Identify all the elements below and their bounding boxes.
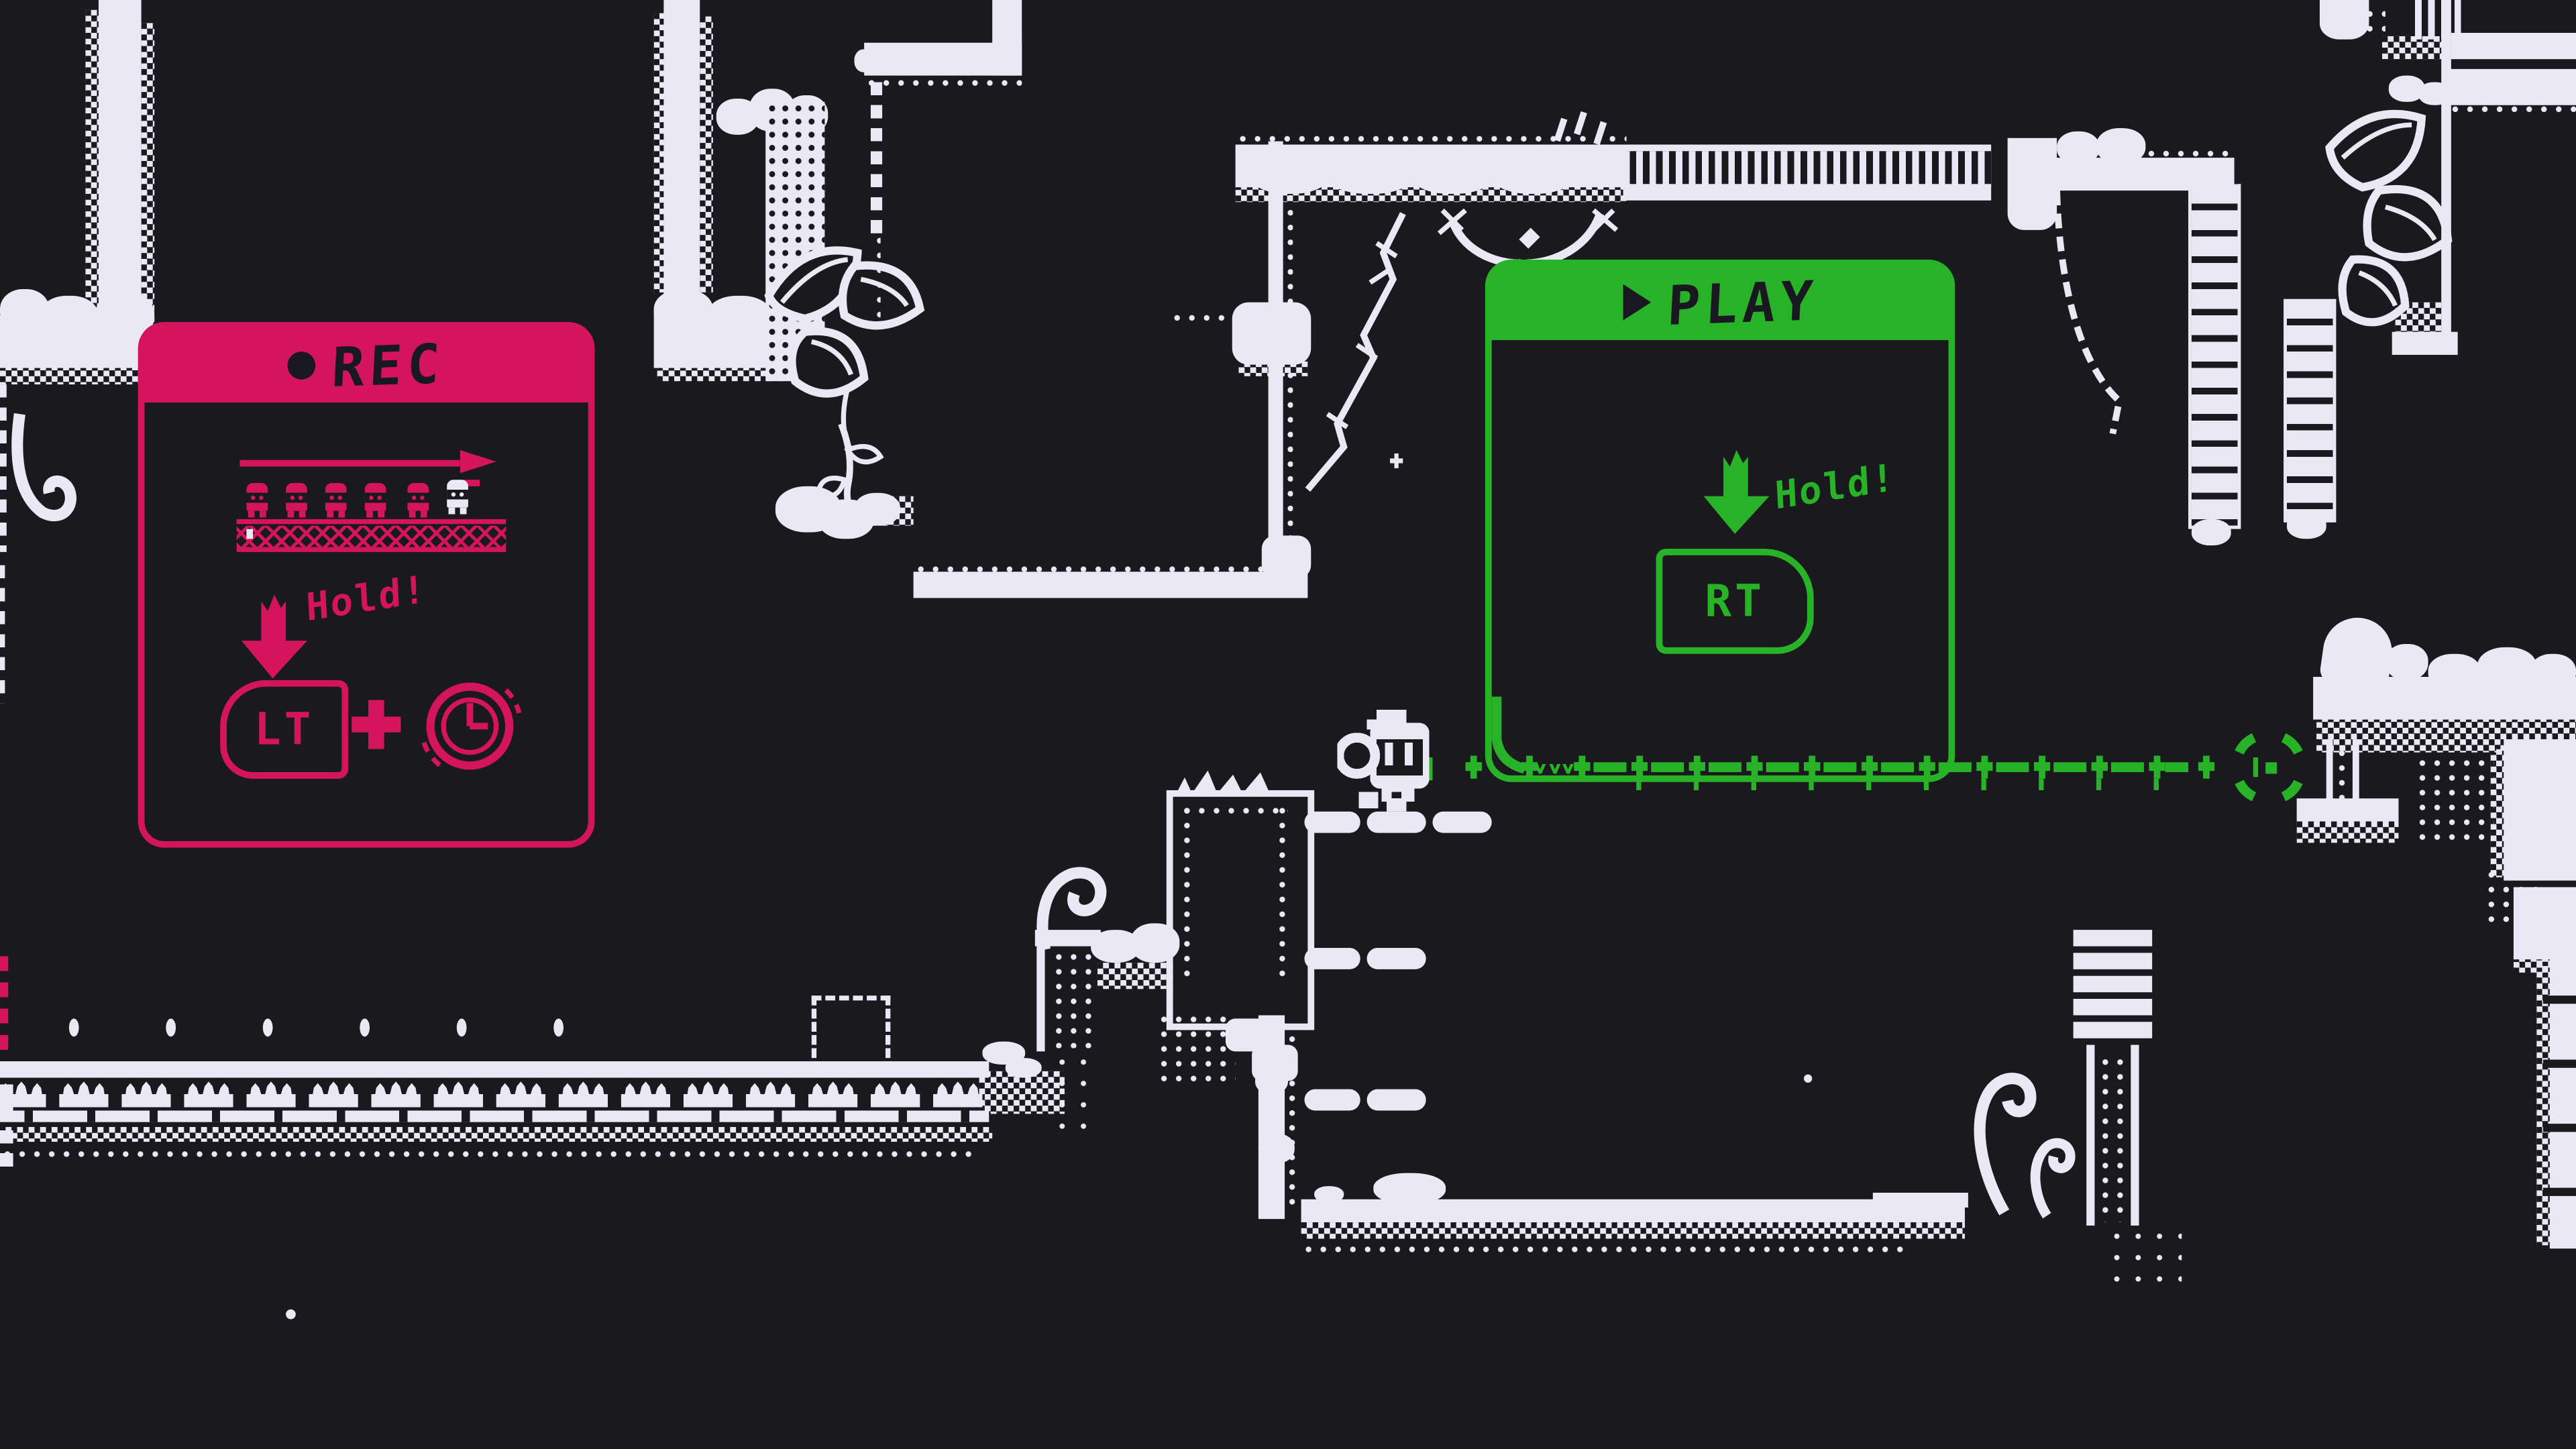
dashed-platform	[1304, 1089, 1360, 1111]
dashed-platform	[1367, 948, 1426, 969]
frame-creature-icon	[325, 483, 347, 511]
vine-chain	[2188, 184, 2241, 529]
terrain-floor	[1301, 1199, 1965, 1222]
terrain-dither	[2536, 943, 2553, 1246]
rec-hold-label: Hold!	[305, 569, 428, 631]
terrain-fringe	[2297, 821, 2399, 843]
wall-seam	[2543, 1188, 2576, 1196]
grate-bar	[2074, 1022, 2153, 1038]
grate-column-line	[2131, 1045, 2139, 1226]
platform-arch	[684, 1081, 733, 1107]
platform-arch	[621, 1081, 670, 1107]
terrain-rock	[2385, 644, 2428, 680]
terrain-floor-checker	[1301, 1222, 1965, 1238]
platform-arch	[808, 1081, 857, 1107]
rec-panel-header: REC	[143, 327, 590, 402]
terrain-comb-wall	[1623, 151, 1992, 187]
platform-arch	[434, 1081, 483, 1107]
path-node	[1919, 756, 1935, 779]
doorframe-dots	[1179, 804, 1288, 817]
wall-seam	[2543, 996, 2576, 1004]
terrain-top-bar	[2451, 33, 2576, 59]
frame-creature-icon	[286, 483, 307, 511]
terrain-corner-bar	[2392, 332, 2458, 355]
target-reticle-icon	[2231, 729, 2307, 805]
terrain-block	[2504, 739, 2576, 881]
terrain-drip	[1236, 184, 1627, 202]
path-dash	[2053, 762, 2086, 772]
rt-button-label: RT	[1705, 576, 1764, 627]
curl-decorations	[1932, 1058, 2083, 1219]
filmstrip-top-line	[237, 519, 506, 524]
rec-panel: REC Hold! LT	[138, 322, 595, 848]
terrain-edge-line	[0, 384, 7, 552]
dashed-platform	[1367, 812, 1426, 833]
dashed-platform	[1304, 948, 1360, 969]
terrain-dither	[2382, 36, 2451, 59]
vine-drape	[2047, 187, 2145, 443]
filmstrip-marker	[246, 529, 253, 539]
platform-notch-bar	[0, 1111, 989, 1122]
terrain-platform	[0, 1061, 989, 1077]
path-node	[2149, 756, 2165, 779]
terrain-rubble	[2106, 1226, 2182, 1288]
path-dash	[1939, 762, 1972, 772]
platform-dots	[0, 1146, 979, 1160]
path-dash	[1594, 762, 1627, 772]
terrain-hanging-dots	[872, 233, 880, 319]
terrain-drip	[0, 365, 151, 384]
path-node	[1862, 756, 1878, 779]
platform-arch	[559, 1081, 608, 1107]
terrain-dot-block	[2415, 756, 2494, 848]
terrain-ridge	[2313, 677, 2576, 720]
terrain-floor-dots	[1301, 1242, 1906, 1255]
terrain-top-wall-base	[1623, 184, 1992, 200]
path-node	[2034, 756, 2050, 779]
terrain-dither	[654, 13, 667, 292]
path-node	[1465, 756, 1481, 779]
path-dot	[457, 1018, 467, 1036]
frame-creature-icon	[246, 483, 268, 511]
path-node	[1746, 756, 1762, 779]
timeline-arrow-head-icon	[460, 443, 496, 480]
path-node	[1521, 756, 1538, 779]
path-stem	[2154, 779, 2159, 790]
plus-icon	[352, 700, 400, 749]
terrain-mid-floor	[914, 572, 1308, 598]
terrain-speck	[1804, 1075, 1812, 1083]
terrain-dither	[2491, 749, 2507, 877]
grate-dots	[2334, 746, 2351, 802]
terrain-dither	[871, 496, 914, 526]
path-dot	[263, 1018, 273, 1036]
terrain-column-dots	[1051, 1051, 1091, 1130]
path-stem	[2039, 779, 2043, 790]
terrain-dissolve	[1097, 963, 1173, 989]
path-stem	[1924, 779, 1929, 790]
terrain-top-wall-line	[1623, 145, 1992, 152]
doorframe-dots	[1179, 804, 1193, 984]
path-node	[2092, 756, 2108, 779]
terrain-dither	[85, 10, 100, 348]
rec-panel-title: REC	[331, 331, 447, 399]
platform-checker	[0, 1127, 992, 1142]
play-triangle-icon	[1623, 284, 1651, 321]
platform-arch	[746, 1081, 795, 1107]
terrain-edge-line	[0, 565, 5, 703]
grate-bar	[2074, 999, 2153, 1015]
grate-column-dots	[2098, 1055, 2127, 1222]
terrain-column-dots	[1051, 950, 1097, 1049]
frame-creature-highlight-icon	[447, 480, 468, 508]
path-dash	[1996, 762, 2029, 772]
terrain-speck	[286, 1309, 296, 1320]
frame-creature-icon	[407, 483, 429, 511]
terrain-fringe	[2448, 102, 2576, 115]
terrain-ridge	[2448, 69, 2576, 105]
dashed-platform	[1367, 1089, 1426, 1111]
play-hold-label: Hold!	[1774, 457, 1896, 519]
recorded-path	[1413, 746, 2254, 795]
filmstrip-bottom-line	[237, 547, 506, 552]
dashed-platform	[1433, 812, 1492, 833]
path-dot	[166, 1018, 176, 1036]
path-dash	[1651, 762, 1684, 772]
wall-seam	[2543, 1060, 2576, 1068]
lt-button-label: LT	[254, 704, 314, 755]
path-dot	[69, 1018, 79, 1036]
vine-chain-tip	[2287, 513, 2326, 539]
terrain-fringe	[864, 76, 1022, 89]
path-node	[1976, 756, 1992, 779]
vine-chain-tip	[2192, 519, 2231, 545]
wall-seam	[2543, 1124, 2576, 1132]
game-viewport[interactable]: REC Hold! LT PL	[0, 0, 2576, 1449]
path-dash	[2111, 762, 2144, 772]
filmstrip-lattice	[237, 526, 506, 547]
grate-column-line	[2086, 1045, 2094, 1226]
path-stem	[2096, 779, 2101, 790]
path-node	[1804, 756, 1820, 779]
terrain-column	[663, 0, 700, 299]
record-dot-icon	[288, 351, 316, 379]
doorframe-dots	[1275, 804, 1288, 984]
vine-branch	[1285, 204, 1423, 503]
terrain-rock	[1255, 1068, 1288, 1094]
play-panel-header: PLAY	[1490, 264, 1950, 340]
terrain-dither	[700, 16, 713, 292]
terrain-column-line	[1036, 947, 1044, 1052]
terrain-rock	[2320, 0, 2369, 40]
timeline-arrow	[240, 460, 460, 467]
terrain-ledge	[2297, 798, 2399, 821]
down-arrow-icon	[1702, 443, 1771, 539]
path-node	[1574, 756, 1590, 779]
path-tick	[1549, 764, 1560, 774]
platform-arch	[184, 1081, 233, 1107]
platform-arch	[246, 1081, 295, 1107]
path-dash	[1766, 762, 1799, 772]
play-panel-title: PLAY	[1666, 268, 1819, 337]
terrain-hanging-line	[871, 82, 882, 233]
platform-arch	[371, 1081, 420, 1107]
platform-arch	[59, 1081, 108, 1107]
path-stem	[1752, 779, 1756, 790]
dashed-platform	[1304, 812, 1360, 833]
terrain-rock	[1130, 923, 1179, 963]
path-node	[2198, 756, 2214, 779]
clock-icon	[414, 667, 529, 782]
terrain-edge-bits	[0, 1084, 13, 1173]
grate-line	[2326, 739, 2333, 805]
red-path-dashes	[0, 956, 8, 1074]
curl-decoration	[7, 411, 79, 529]
path-stem	[1694, 779, 1699, 790]
platform-arch	[496, 1081, 545, 1107]
path-node	[1689, 756, 1705, 779]
play-panel: PLAY Hold! RT	[1485, 260, 1955, 782]
platform-arch	[121, 1081, 170, 1107]
path-dot	[553, 1018, 563, 1036]
rt-button-icon: RT	[1656, 549, 1814, 654]
terrain-rock	[1258, 1134, 1295, 1163]
terrain-dotted-ledge	[1170, 311, 1236, 322]
path-tick	[1562, 764, 1574, 774]
lt-button-icon: LT	[220, 680, 348, 779]
path-dash	[1823, 762, 1856, 772]
path-dash	[1709, 762, 1741, 772]
terrain-dither	[2363, 7, 2385, 36]
path-dash	[1881, 762, 1914, 772]
terrain-column-dots	[1285, 1032, 1301, 1206]
terrain-decay	[1157, 1012, 1236, 1085]
path-stem	[1866, 779, 1871, 790]
path-dot	[360, 1018, 370, 1036]
platform-arch	[309, 1081, 358, 1107]
frame-creature-icon	[365, 483, 386, 511]
terrain-lower-column	[1258, 1015, 1285, 1219]
path-stem	[1809, 779, 1813, 790]
terrain-pillar	[992, 0, 1022, 76]
terrain-right-wall	[2550, 936, 2576, 1248]
grate-bar	[2074, 953, 2153, 969]
path-stem	[1636, 779, 1641, 790]
terrain-checker-block	[2396, 303, 2442, 332]
terrain-rock	[2418, 82, 2451, 105]
path-node	[1631, 756, 1648, 779]
grate-line	[2353, 739, 2359, 805]
grate-bar	[2074, 976, 2153, 992]
path-stem	[1981, 779, 1986, 790]
terrain-ridge	[0, 315, 151, 368]
grate-bar	[2074, 930, 2153, 946]
path-dash	[2165, 762, 2188, 772]
robot-character	[1337, 710, 1432, 812]
dashed-outline-square	[812, 996, 891, 1071]
down-arrow-icon	[240, 592, 309, 680]
platform-arch	[871, 1081, 920, 1107]
platform-arch	[933, 1081, 982, 1107]
